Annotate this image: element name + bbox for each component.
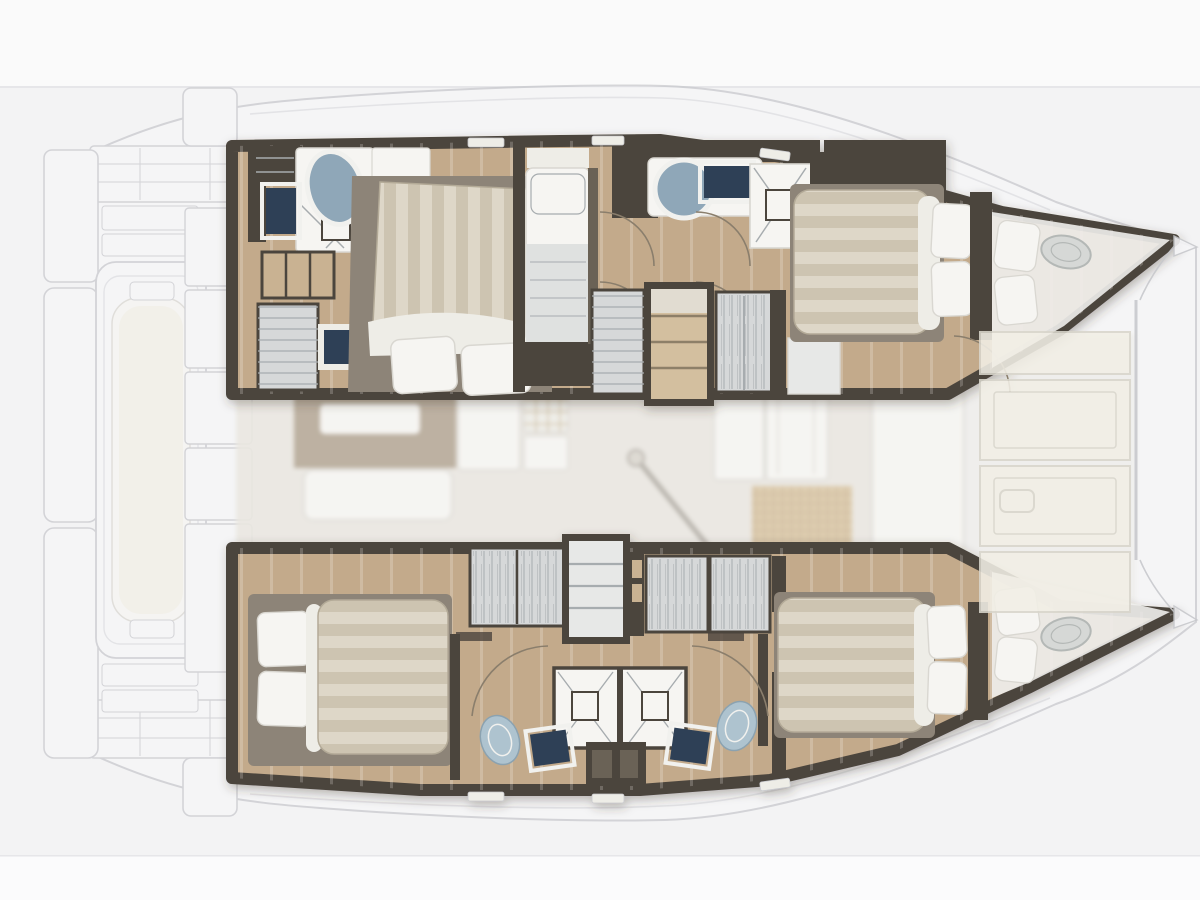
platform-edge-2 [44, 288, 98, 522]
dinghy-hull [119, 306, 183, 614]
bottom-band [0, 856, 1200, 900]
pillow [531, 174, 585, 214]
fridge-unit [766, 392, 828, 480]
companionway-stairs-port [644, 282, 714, 406]
headboard-bulkhead [968, 602, 988, 720]
galley-sink-unit [524, 436, 568, 470]
mast-foot [628, 450, 644, 466]
foredeck-locker [980, 552, 1130, 612]
stern-step [102, 206, 198, 230]
pillow [931, 261, 973, 316]
portlight [592, 136, 624, 145]
berth-blanket [526, 244, 590, 342]
berth-base [522, 342, 594, 386]
headboard-bulkhead [970, 192, 992, 340]
shower-drain [642, 692, 668, 720]
stern-step [102, 690, 198, 712]
stern-platform [44, 88, 255, 816]
portlight [468, 138, 504, 147]
portlight [592, 794, 624, 803]
foredeck-locker [980, 332, 1130, 374]
locker-shelves [262, 252, 334, 298]
sink-navy [704, 166, 750, 198]
pillow [927, 605, 968, 659]
shower-drain [572, 692, 598, 720]
platform-edge-3 [44, 528, 98, 758]
forepeak-berth-cushion [994, 636, 1038, 684]
stern-step [102, 664, 198, 686]
companionway-stairs-starboard [562, 534, 630, 644]
catamaran-layout-plan [0, 0, 1200, 900]
table-tray [320, 404, 420, 434]
floor-plan-svg [0, 0, 1200, 900]
single-berth [522, 148, 598, 386]
platform-edge-1 [44, 150, 98, 282]
sink-navy [266, 188, 296, 234]
portlight [468, 792, 504, 801]
low-cabinet [788, 338, 840, 394]
pillow [257, 611, 311, 667]
stern-step [102, 234, 198, 256]
starboard-aft-cabin-bed [248, 594, 452, 766]
davit-top [183, 88, 237, 146]
duvet [794, 190, 930, 334]
top-band [0, 0, 1200, 86]
pillow [257, 671, 311, 727]
shower-drain [766, 190, 794, 220]
forepeak-berth-cushion [994, 274, 1039, 326]
chart-table [872, 388, 964, 556]
duvet [778, 598, 926, 732]
pillow [390, 336, 458, 394]
sideboard [714, 392, 764, 480]
duvet [318, 600, 448, 754]
saloon-sofa [304, 470, 452, 520]
forepeak-berth-cushion [993, 219, 1041, 272]
pillow [931, 203, 974, 259]
pillow [927, 661, 967, 714]
